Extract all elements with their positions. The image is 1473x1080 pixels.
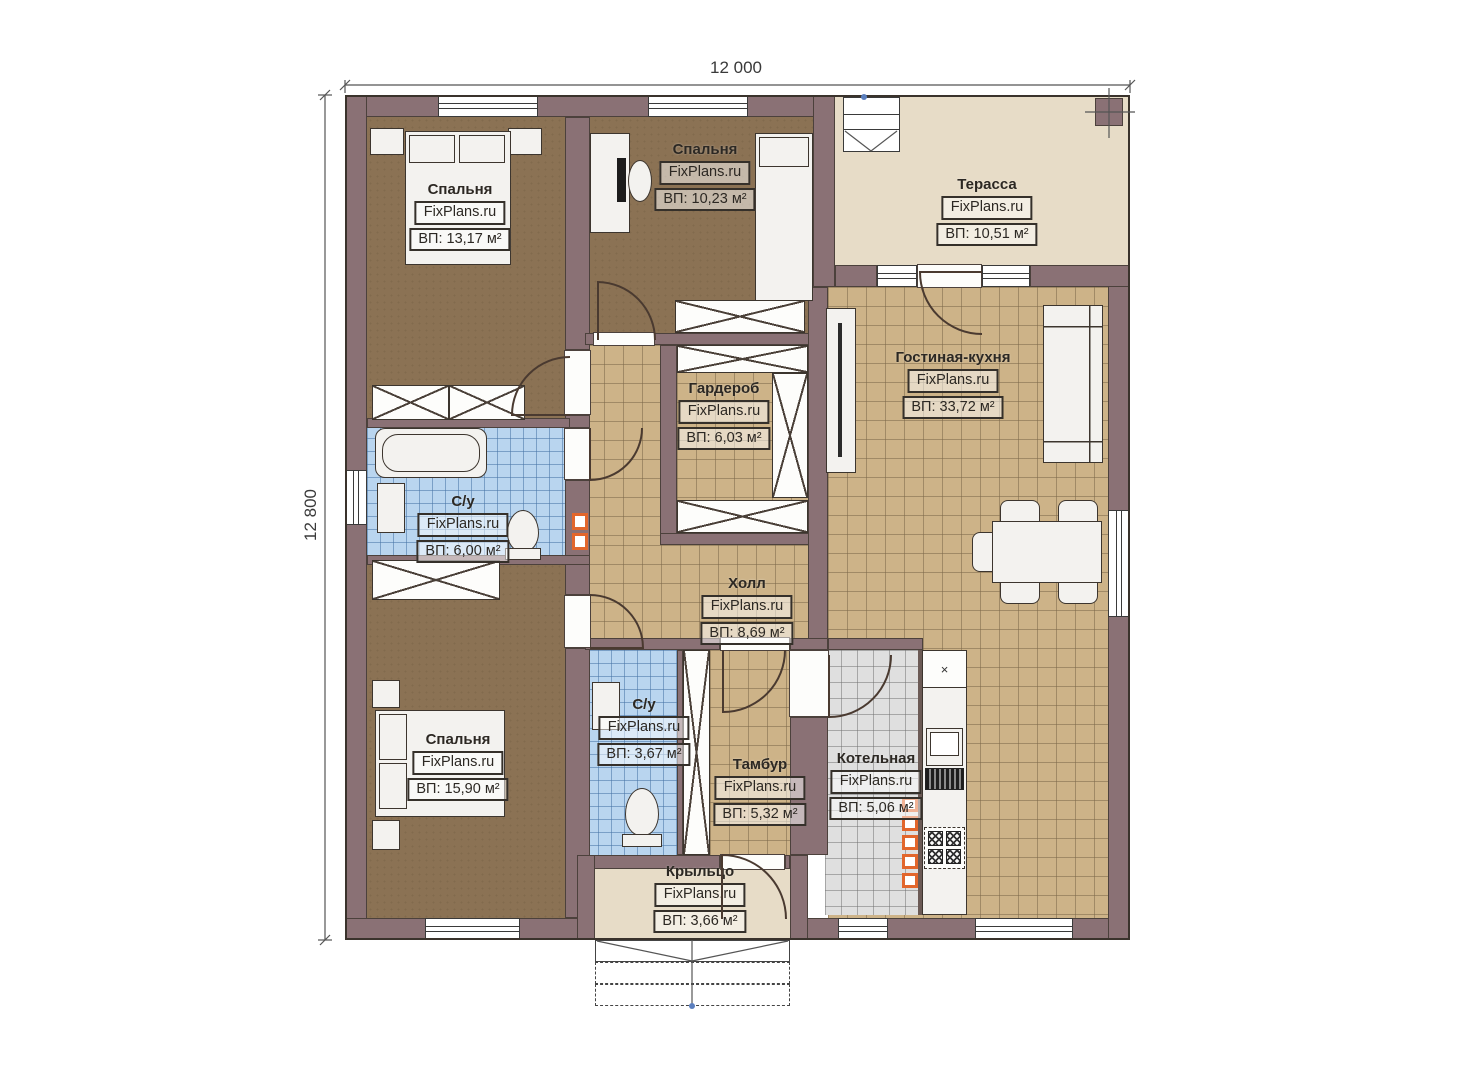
- room-name: С/у: [451, 493, 474, 510]
- closet-wardrobe-bottom: [677, 500, 808, 533]
- room-area: ВП: 3,67 м²: [597, 743, 690, 767]
- room-label-bathroom-1: С/у FixPlans.ru ВП: 6,00 м²: [416, 493, 509, 563]
- closet-bedroom-3: [372, 560, 500, 600]
- room-area: ВП: 13,17 м²: [409, 228, 510, 252]
- nightstand: [370, 128, 404, 155]
- watermark: FixPlans.ru: [908, 369, 999, 393]
- window-living-south: [975, 918, 1073, 940]
- porch-step: [595, 940, 790, 962]
- stove-burners: [924, 827, 965, 869]
- room-name: Котельная: [837, 750, 916, 767]
- window-living-east: [1108, 510, 1130, 617]
- watermark: FixPlans.ru: [415, 201, 506, 225]
- watermark: FixPlans.ru: [660, 161, 751, 185]
- porch-step: [595, 984, 790, 1006]
- bathtub-basin: [382, 434, 480, 472]
- watermark: FixPlans.ru: [679, 400, 770, 424]
- window-bedroom-1: [438, 95, 538, 117]
- bathtub: [375, 428, 487, 478]
- room-label-bathroom-2: С/у FixPlans.ru ВП: 3,67 м²: [597, 696, 690, 766]
- door-gap-boiler: [789, 650, 829, 717]
- room-label-terrace: Терасса FixPlans.ru ВП: 10,51 м²: [936, 176, 1037, 246]
- sofa: [1043, 305, 1103, 463]
- pillow: [379, 763, 407, 809]
- porch-step: [595, 962, 790, 984]
- burner: [946, 849, 961, 864]
- room-name: Холл: [728, 575, 766, 592]
- vent-shaft: [902, 854, 918, 869]
- window-terrace-2: [982, 265, 1030, 287]
- terrace-column: [1095, 98, 1123, 126]
- monitor: [617, 158, 626, 202]
- room-area: ВП: 10,23 м²: [654, 188, 755, 212]
- room-area: ВП: 33,72 м²: [902, 396, 1003, 420]
- room-area: ВП: 15,90 м²: [407, 778, 508, 802]
- wall-terrace-south-a: [835, 265, 877, 287]
- dishwasher: [925, 768, 964, 790]
- window-terrace-1: [877, 265, 917, 287]
- room-area: ВП: 5,32 м²: [713, 803, 806, 827]
- watermark: FixPlans.ru: [655, 883, 746, 907]
- watermark: FixPlans.ru: [715, 776, 806, 800]
- room-name: С/у: [632, 696, 655, 713]
- toilet-bowl: [507, 510, 539, 552]
- vent-shaft: [902, 873, 918, 888]
- pillow: [409, 135, 455, 163]
- door-gap-terrace: [917, 264, 982, 288]
- watermark: FixPlans.ru: [702, 595, 793, 619]
- pillow: [759, 137, 809, 167]
- room-label-hall: Холл FixPlans.ru ВП: 8,69 м²: [700, 575, 793, 645]
- nightstand: [508, 128, 542, 155]
- room-label-tambour: Тамбур FixPlans.ru ВП: 5,32 м²: [713, 756, 806, 826]
- watermark: FixPlans.ru: [942, 196, 1033, 220]
- room-label-bedroom-2: Спальня FixPlans.ru ВП: 10,23 м²: [654, 141, 755, 211]
- wall-hall-south-b: [790, 638, 828, 650]
- closet-cell: [449, 385, 526, 420]
- tv: [838, 323, 842, 457]
- burner: [928, 849, 943, 864]
- nightstand: [372, 820, 400, 850]
- window-bedroom-2: [648, 95, 748, 117]
- radiator: [572, 533, 588, 550]
- desk-chair: [628, 160, 652, 202]
- room-name: Тамбур: [733, 756, 787, 773]
- closet-cell: [372, 385, 449, 420]
- room-label-bedroom-1: Спальня FixPlans.ru ВП: 13,17 м²: [409, 181, 510, 251]
- door-gap-bathroom-1: [564, 428, 591, 480]
- window-bathroom-1: [345, 470, 367, 525]
- wall-living-west: [808, 287, 828, 650]
- wall-wardrobe-south: [660, 533, 813, 545]
- burner: [946, 831, 961, 846]
- wardrobe-bedroom-2: [675, 300, 805, 333]
- nightstand: [372, 680, 400, 708]
- wall-wardrobe-west: [660, 345, 677, 545]
- watermark: FixPlans.ru: [413, 751, 504, 775]
- room-label-bedroom-3: Спальня FixPlans.ru ВП: 15,90 м²: [407, 731, 508, 801]
- room-name: Гостиная-кухня: [896, 349, 1011, 366]
- pillow: [379, 714, 407, 760]
- room-area: ВП: 6,03 м²: [677, 427, 770, 451]
- watermark: FixPlans.ru: [599, 716, 690, 740]
- watermark: FixPlans.ru: [418, 513, 509, 537]
- wall-top: [345, 95, 835, 117]
- wall-terrace-south-b: [1030, 265, 1130, 287]
- pillow: [459, 135, 505, 163]
- window-bedroom-3: [425, 918, 520, 940]
- room-label-living-kitchen: Гостиная-кухня FixPlans.ru ВП: 33,72 м²: [896, 349, 1011, 419]
- toilet-tank: [505, 548, 541, 560]
- door-gap-bedroom-3: [564, 595, 591, 648]
- room-area: ВП: 10,51 м²: [936, 223, 1037, 247]
- dimension-width: 12 000: [710, 58, 762, 78]
- room-name: Спальня: [673, 141, 738, 158]
- toilet-tank: [622, 834, 662, 847]
- closet-wardrobe-top: [677, 345, 808, 373]
- room-area: ВП: 6,00 м²: [416, 540, 509, 564]
- vent-shaft: [902, 835, 918, 850]
- closet-bedroom-1: [372, 385, 525, 418]
- watermark: FixPlans.ru: [831, 770, 922, 794]
- room-area: ВП: 3,66 м²: [653, 910, 746, 934]
- room-label-porch: Крыльцо FixPlans.ru ВП: 3,66 м²: [653, 863, 746, 933]
- kitchen-sink-basin: [930, 732, 959, 756]
- wall-boiler-north: [828, 638, 923, 650]
- door-gap-bedroom-1: [564, 350, 591, 415]
- room-name: Спальня: [426, 731, 491, 748]
- toilet-bowl: [625, 788, 659, 836]
- wall-terrace-west: [813, 95, 835, 287]
- room-area: ВП: 8,69 м²: [700, 622, 793, 646]
- closet-wardrobe-right: [772, 373, 808, 498]
- sink: [377, 483, 405, 533]
- radiator: [572, 513, 588, 530]
- room-name: Гардероб: [689, 380, 760, 397]
- floor-plan: × Спальня FixPlans.ru ВП: 13,17 м² Спаль…: [0, 0, 1473, 1080]
- room-name: Терасса: [957, 176, 1016, 193]
- window-boiler: [838, 918, 888, 940]
- dining-table: [992, 521, 1102, 583]
- wall-porch-stub-west: [577, 855, 595, 940]
- wall-spine-a: [565, 117, 590, 350]
- burner: [928, 831, 943, 846]
- hob-unit: ×: [922, 650, 967, 688]
- room-name: Спальня: [428, 181, 493, 198]
- terrace-stairs: [843, 97, 900, 152]
- door-gap-bedroom-2: [593, 332, 655, 346]
- room-name: Крыльцо: [666, 863, 734, 880]
- room-label-boiler-room: Котельная FixPlans.ru ВП: 5,06 м²: [829, 750, 922, 820]
- wall-porch-stub-east: [790, 855, 808, 940]
- room-label-wardrobe: Гардероб FixPlans.ru ВП: 6,03 м²: [677, 380, 770, 450]
- room-area: ВП: 5,06 м²: [829, 797, 922, 821]
- dimension-height: 12 800: [301, 489, 321, 541]
